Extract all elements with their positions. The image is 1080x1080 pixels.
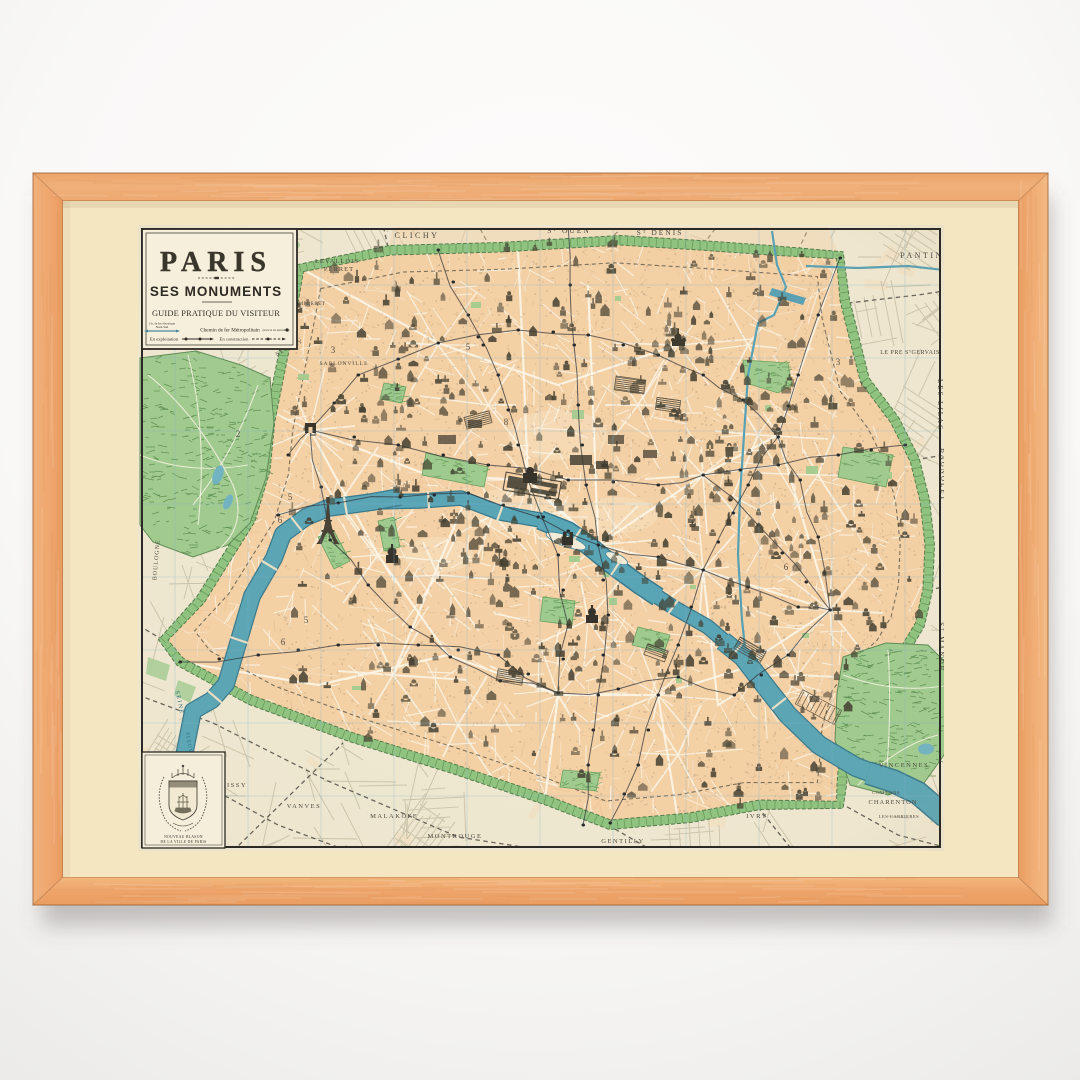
svg-text:VANVES: VANVES bbox=[287, 803, 322, 810]
svg-text:6: 6 bbox=[784, 562, 789, 572]
svg-text:DE LA VILLE DE PARIS: DE LA VILLE DE PARIS bbox=[161, 840, 207, 844]
svg-text:SABLONVILLE: SABLONVILLE bbox=[320, 361, 369, 367]
svg-text:LEVALLOIS: LEVALLOIS bbox=[315, 258, 359, 265]
svg-text:MONTROUGE: MONTROUGE bbox=[427, 833, 482, 840]
svg-text:6: 6 bbox=[278, 515, 283, 525]
svg-text:Chemin de fer Métropolitain: Chemin de fer Métropolitain bbox=[200, 327, 260, 334]
svg-text:CHARENTON: CHARENTON bbox=[869, 799, 918, 806]
svg-text:PERRET: PERRET bbox=[324, 266, 354, 273]
svg-text:PANTIN: PANTIN bbox=[900, 251, 944, 260]
svg-text:CLICHY: CLICHY bbox=[395, 231, 440, 240]
svg-text:3: 3 bbox=[836, 357, 841, 367]
svg-text:CONFLANS: CONFLANS bbox=[872, 790, 900, 795]
svg-text:6: 6 bbox=[281, 637, 286, 647]
svg-text:SES MONUMENTS: SES MONUMENTS bbox=[150, 284, 282, 299]
svg-text:8: 8 bbox=[504, 417, 509, 427]
svg-text:Nord-Sud: Nord-Sud bbox=[156, 325, 169, 329]
svg-text:5: 5 bbox=[304, 615, 309, 625]
svg-text:3: 3 bbox=[331, 345, 336, 355]
svg-text:Sᵀ OUEN: Sᵀ OUEN bbox=[547, 226, 591, 235]
svg-text:IVRY: IVRY bbox=[746, 813, 768, 820]
svg-text:PARIS: PARIS bbox=[160, 247, 272, 278]
svg-text:MALAKOFF: MALAKOFF bbox=[370, 813, 418, 820]
svg-text:5: 5 bbox=[466, 342, 471, 352]
svg-text:2: 2 bbox=[236, 429, 241, 439]
svg-text:LE PRE SᵀGERVAIS: LE PRE SᵀGERVAIS bbox=[880, 350, 940, 356]
svg-text:GENTILLY: GENTILLY bbox=[601, 838, 644, 845]
svg-text:ISSY: ISSY bbox=[227, 782, 247, 789]
svg-text:En exploitation: En exploitation bbox=[150, 337, 179, 342]
svg-text:5: 5 bbox=[288, 492, 293, 502]
svg-text:GUIDE PRATIQUE DU VISITEUR: GUIDE PRATIQUE DU VISITEUR bbox=[152, 309, 280, 318]
svg-text:(tracé et en exécution): (tracé et en exécution) bbox=[263, 328, 290, 332]
svg-text:LES CARRIERES: LES CARRIERES bbox=[879, 814, 919, 819]
svg-text:NOUVEAU BLASON: NOUVEAU BLASON bbox=[164, 835, 203, 839]
svg-text:VINCENNES: VINCENNES bbox=[879, 762, 929, 769]
svg-text:En construction: En construction bbox=[220, 337, 250, 342]
